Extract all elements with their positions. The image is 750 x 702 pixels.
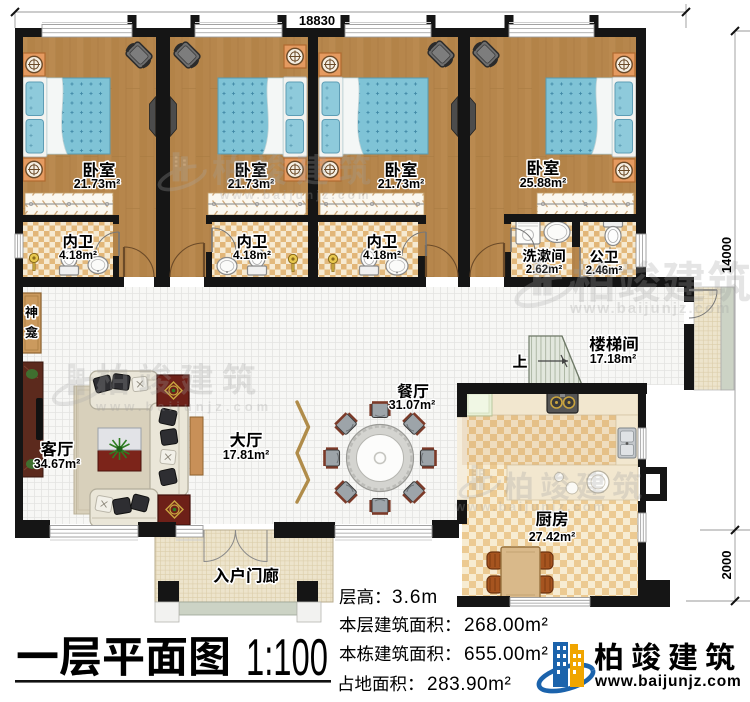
svg-text:www.baijunjz.com: www.baijunjz.com: [569, 300, 731, 317]
svg-text:4.18m²: 4.18m²: [59, 248, 97, 262]
svg-text:4.18m²: 4.18m²: [363, 248, 401, 262]
svg-text:4.18m²: 4.18m²: [233, 248, 271, 262]
svg-text:25.88m²: 25.88m²: [520, 176, 567, 190]
svg-text:www.baijunjz.com: www.baijunjz.com: [594, 673, 742, 690]
svg-text:34.67m²: 34.67m²: [34, 457, 81, 471]
svg-text:www.baijunjz.com: www.baijunjz.com: [95, 399, 272, 414]
svg-text:283.90m²: 283.90m²: [427, 674, 511, 695]
svg-text:2000: 2000: [719, 551, 734, 580]
svg-text:17.18m²: 17.18m²: [590, 352, 637, 366]
svg-text:3.6m: 3.6m: [392, 587, 438, 608]
svg-text:268.00m²: 268.00m²: [464, 615, 548, 636]
svg-text:www.baijunjz.com: www.baijunjz.com: [219, 188, 372, 202]
svg-text:1:100: 1:100: [246, 630, 328, 687]
svg-text:21.73m²: 21.73m²: [378, 177, 425, 191]
svg-text:17.81m²: 17.81m²: [223, 448, 270, 462]
svg-text:31.07m²: 31.07m²: [389, 398, 436, 412]
svg-text:14000: 14000: [719, 237, 734, 273]
svg-text:27.42m²: 27.42m²: [529, 530, 576, 544]
svg-text:655.00m²: 655.00m²: [464, 644, 548, 665]
svg-text:21.73m²: 21.73m²: [74, 177, 121, 191]
svg-text:18830: 18830: [299, 13, 335, 28]
svg-text:www.baijunjz.com: www.baijunjz.com: [454, 499, 607, 514]
